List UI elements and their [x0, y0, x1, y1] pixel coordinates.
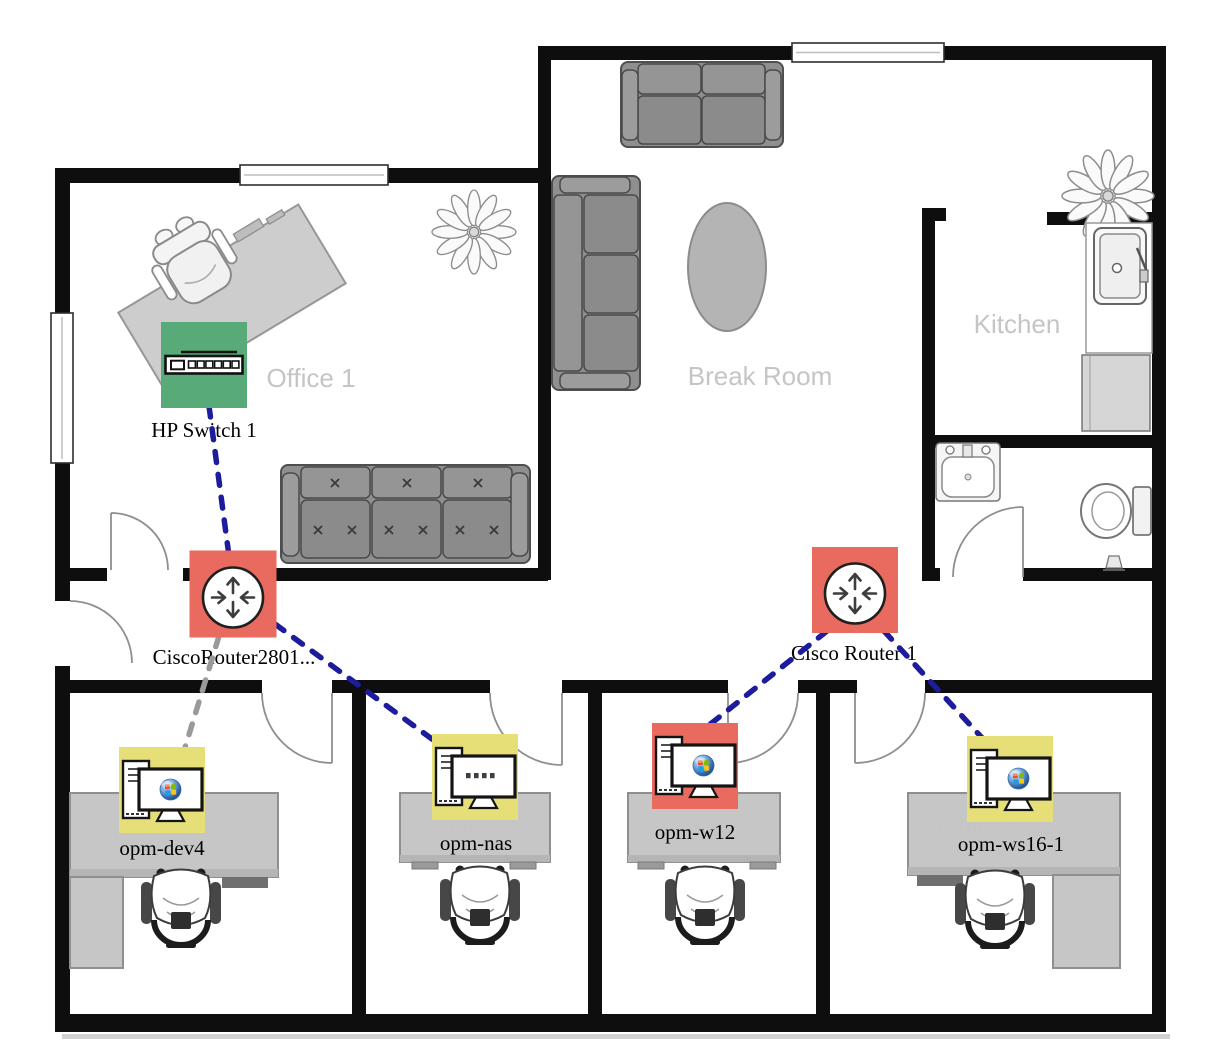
- chair-office3: [440, 866, 520, 946]
- wall-office4-5-divider: [816, 680, 830, 1014]
- bathroom-toilet: [1081, 484, 1151, 538]
- wall-office3-4-divider: [588, 680, 602, 1014]
- node-opm-w12[interactable]: [652, 723, 738, 809]
- wall-right: [1152, 46, 1166, 1032]
- sofa-office1: [281, 465, 530, 563]
- kitchen-counter: [1086, 223, 1152, 353]
- node-label-hp-switch-1: HP Switch 1: [151, 418, 256, 442]
- door-office5: [855, 693, 925, 763]
- floorplan: [51, 43, 1170, 1039]
- wall-kitchen-stub: [922, 208, 946, 221]
- chair-office5: [955, 870, 1035, 950]
- bathroom-sink: [936, 443, 1000, 501]
- node-label-opm-w12: opm-w12: [655, 820, 736, 844]
- room-label-office-1: Office 1: [266, 363, 355, 393]
- door-office1: [111, 513, 168, 570]
- nodes: [119, 322, 1053, 833]
- door-bathroom: [953, 507, 1023, 577]
- node-hp-switch-1[interactable]: [161, 322, 247, 408]
- chair-office2: [141, 869, 221, 949]
- wall-left-a: [55, 168, 70, 315]
- wall-office2-3-divider: [352, 680, 366, 1014]
- sofa-breakroom-left: [552, 176, 640, 390]
- link-cisco-router-1--opm-w12[interactable]: [708, 631, 827, 726]
- node-opm-ws16-1[interactable]: [967, 736, 1053, 822]
- node-label-opm-nas: opm-nas: [440, 831, 512, 855]
- wall-officerow-c: [562, 680, 728, 693]
- kitchen-fridge: [1082, 355, 1150, 431]
- wall-officerow-e: [925, 680, 1166, 693]
- wall-kitchen-left: [922, 208, 935, 581]
- room-label-kitchen: Kitchen: [974, 309, 1061, 339]
- network-map-canvas[interactable]: Office 1Break RoomKitchenOffice 2Office …: [0, 0, 1230, 1063]
- bathroom-drain: [1103, 556, 1125, 570]
- wall-bath-bottom-b: [1023, 568, 1166, 581]
- wall-office1-breakroom-divider: [538, 46, 551, 580]
- node-label-opm-ws16-1: opm-ws16-1: [958, 832, 1064, 856]
- door-corridor-left: [70, 601, 132, 663]
- node-cisco-router-2801[interactable]: [190, 551, 277, 638]
- wall-left-c: [55, 666, 70, 1014]
- wall-office1-bottom-a: [55, 568, 107, 581]
- node-opm-nas[interactable]: [432, 734, 518, 820]
- wall-bottom: [55, 1014, 1166, 1032]
- node-label-opm-dev4: opm-dev4: [119, 836, 205, 860]
- door-office2: [262, 693, 332, 763]
- plant-office1: [432, 190, 516, 274]
- wall-bath-bottom-a: [922, 568, 940, 581]
- wall-officerow-a: [55, 680, 262, 693]
- node-label-cisco-router-2801: CiscoRouter2801...: [153, 645, 316, 669]
- node-cisco-router-1[interactable]: [812, 547, 898, 633]
- sofa-breakroom-top: [621, 62, 783, 147]
- wall-bottom-shadow: [62, 1034, 1170, 1039]
- table-breakroom: [688, 203, 766, 331]
- switch-icon: [166, 352, 243, 374]
- chair-office4: [665, 866, 745, 946]
- room-label-break-room: Break Room: [688, 361, 833, 391]
- router-icon: [825, 564, 885, 624]
- node-opm-dev4[interactable]: [119, 747, 205, 833]
- router-icon: [203, 568, 263, 628]
